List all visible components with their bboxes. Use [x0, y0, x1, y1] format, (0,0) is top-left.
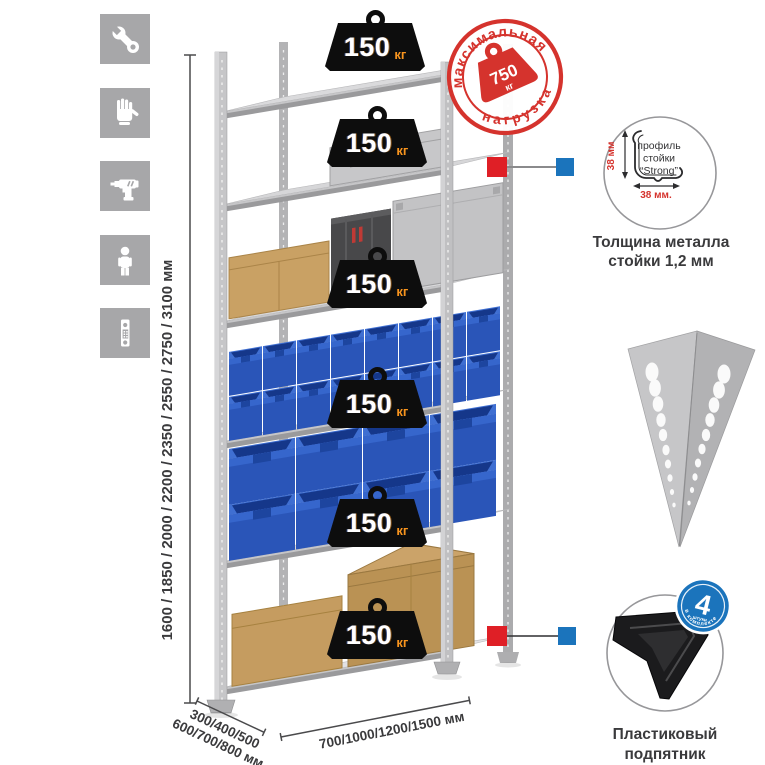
- storage-bin: [229, 391, 262, 441]
- blue-marker-square: [558, 627, 576, 645]
- connector-bottom: [487, 626, 576, 646]
- weight-body: 150 кг: [327, 380, 427, 428]
- load-unit: кг: [394, 47, 406, 62]
- person-icon: [108, 243, 142, 277]
- shelf-load-badge-4: 150 кг: [327, 367, 427, 429]
- weight-body: 150 кг: [327, 119, 427, 167]
- height-dimension: 1600 / 1850 / 2000 / 2200 / 2350 / 2550 …: [159, 55, 196, 703]
- weight-body: 150 кг: [327, 260, 427, 308]
- profile-dim-horizontal: 38 мм.: [640, 190, 672, 201]
- shelf-load-badge-2: 150 кг: [327, 106, 427, 168]
- profile-label-line3: “Strong”: [640, 165, 678, 177]
- storage-bin: [430, 460, 496, 527]
- load-value: 150: [346, 269, 393, 300]
- profile-label-line2: стойки: [643, 153, 675, 165]
- profile-label-line1: профиль: [637, 140, 681, 152]
- load-unit: кг: [396, 635, 408, 650]
- load-unit: кг: [396, 284, 408, 299]
- load-value: 150: [346, 389, 393, 420]
- storage-bin: [296, 426, 362, 493]
- storage-bin: [263, 386, 296, 436]
- weight-body: 150 кг: [325, 23, 425, 71]
- blue-marker-square: [556, 158, 574, 176]
- tile-wrench: [100, 14, 150, 64]
- foot-detail-circle: 4 штуки в комплекте: [607, 573, 736, 711]
- profile-caption-line1: Толщина металла: [593, 234, 730, 251]
- load-value: 150: [346, 620, 393, 651]
- load-value: 150: [346, 128, 393, 159]
- profile-detail-circle: 38 мм 38 мм. профиль стойки “Strong”: [604, 117, 716, 229]
- storage-bin: [430, 404, 496, 471]
- red-marker-square: [487, 626, 507, 646]
- shelf-load-badge-5: 150 кг: [327, 486, 427, 548]
- storage-bin: [229, 494, 295, 561]
- tile-person: [100, 235, 150, 285]
- storage-bin: [365, 323, 398, 373]
- load-unit: кг: [396, 404, 408, 419]
- foot-caption-line1: Пластиковый: [613, 726, 718, 743]
- height-values: 1600 / 1850 / 2000 / 2200 / 2350 / 2550 …: [159, 260, 176, 641]
- storage-bin: [229, 438, 295, 505]
- weight-body: 150 кг: [327, 611, 427, 659]
- shelf-load-badge-3: 150 кг: [327, 247, 427, 309]
- back-right-foot: [497, 652, 519, 663]
- load-unit: кг: [396, 143, 408, 158]
- connector-top: [487, 157, 574, 177]
- storage-bin: [297, 335, 330, 385]
- gloves-icon: [108, 96, 142, 130]
- tile-gloves: [100, 88, 150, 138]
- profile-dim-vertical: 38 мм: [606, 142, 617, 171]
- storage-bin: [229, 346, 262, 396]
- width-dimension: 700/1000/1200/1500 мм: [280, 696, 473, 758]
- storage-bin: [263, 341, 296, 391]
- load-unit: кг: [396, 523, 408, 538]
- storage-bin: [297, 380, 330, 430]
- red-marker-square: [487, 157, 507, 177]
- weight-body: 150 кг: [327, 499, 427, 547]
- storage-bin: [467, 351, 500, 401]
- load-value: 150: [344, 32, 391, 63]
- storage-bin: [467, 306, 500, 356]
- tile-post-profile: [100, 308, 150, 358]
- drill-icon: [108, 169, 142, 203]
- wrench-icon: [108, 22, 142, 56]
- load-value: 150: [346, 508, 393, 539]
- corner-post-image: [628, 331, 755, 547]
- post-profile-icon: [108, 316, 142, 350]
- shelf-load-badge-6: 150 кг: [327, 598, 427, 660]
- tile-drill: [100, 161, 150, 211]
- storage-bin: [399, 318, 432, 368]
- shelf-load-badge-1: 150 кг: [325, 10, 425, 72]
- profile-caption-line2: стойки 1,2 мм: [608, 253, 713, 270]
- product-infographic: 1600 / 1850 / 2000 / 2200 / 2350 / 2550 …: [0, 0, 765, 765]
- foot-caption-line2: подпятник: [624, 746, 705, 763]
